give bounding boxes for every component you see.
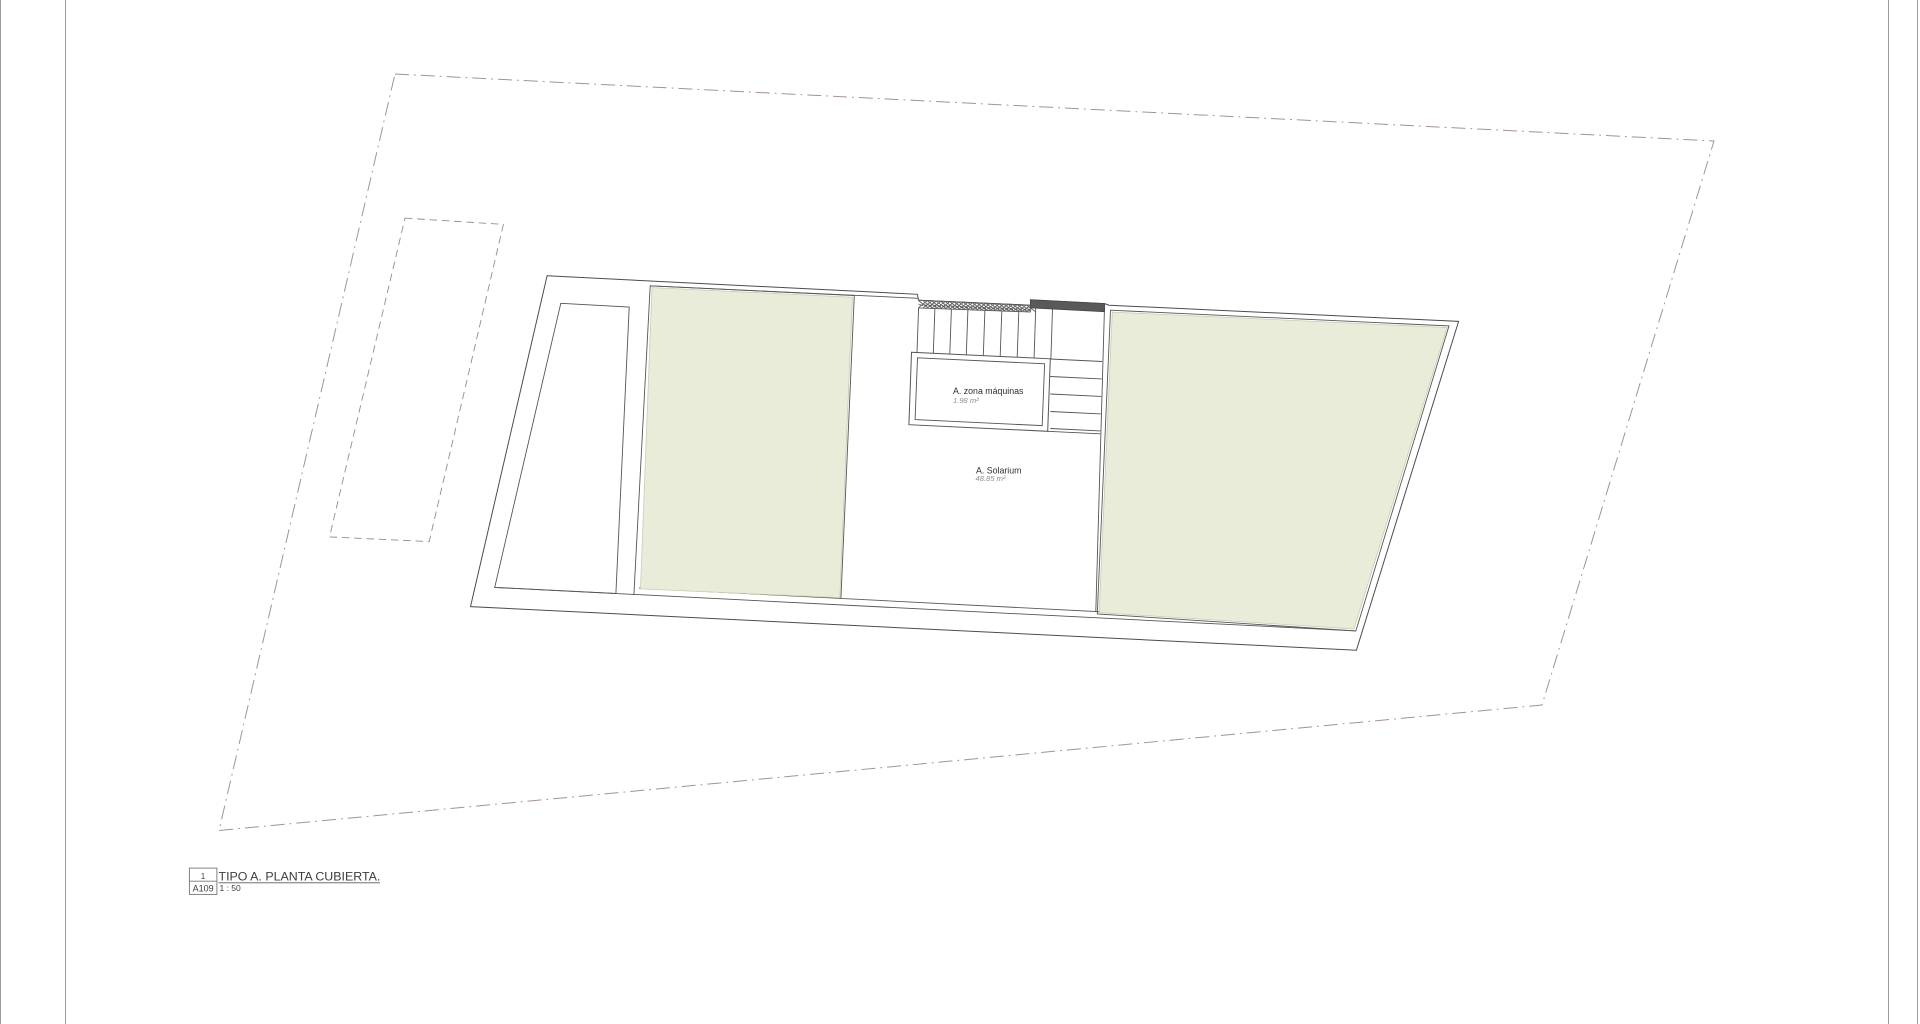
- svg-text:A. zona máquinas: A. zona máquinas: [953, 386, 1024, 396]
- svg-text:1: 1: [201, 872, 205, 881]
- svg-text:48.85 m²: 48.85 m²: [976, 474, 1006, 483]
- svg-text:1 : 50: 1 : 50: [220, 883, 242, 893]
- svg-text:TIPO A. PLANTA CUBIERTA.: TIPO A. PLANTA CUBIERTA.: [219, 869, 381, 883]
- svg-text:1.98 m²: 1.98 m²: [953, 396, 979, 405]
- svg-text:A109: A109: [193, 884, 214, 894]
